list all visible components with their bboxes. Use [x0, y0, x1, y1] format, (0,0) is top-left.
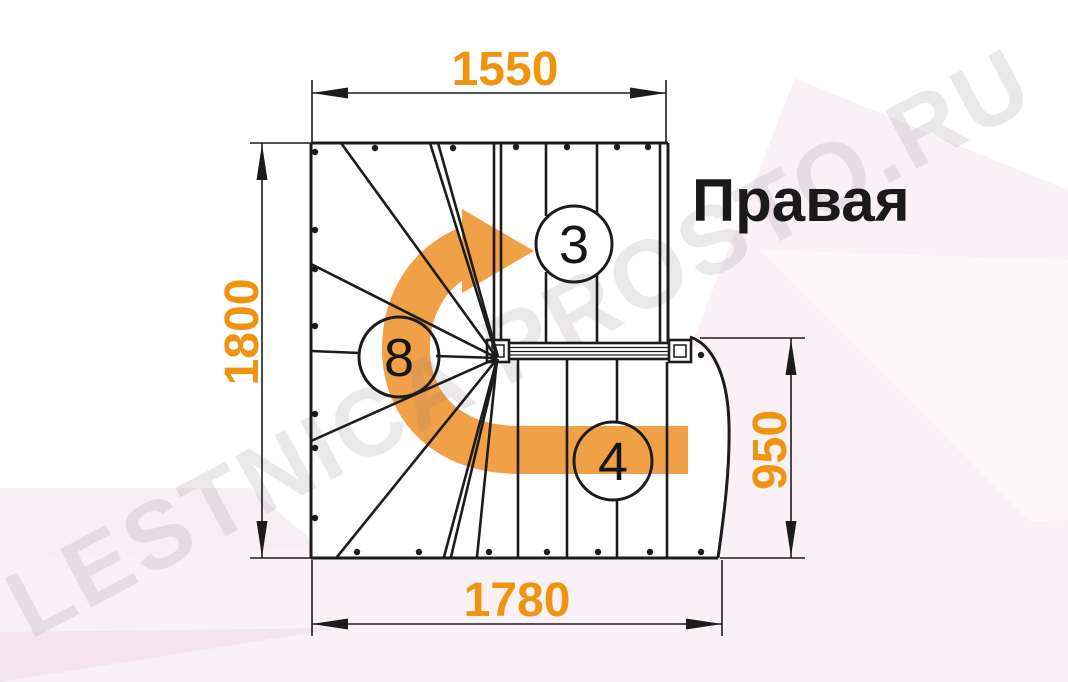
badge-label-winder: 8: [384, 328, 414, 388]
screw-dot: [450, 145, 456, 151]
stair-plan-page: LESTNICA PROSTO.RU: [0, 0, 1068, 682]
screw-dot: [312, 515, 318, 521]
stair-plan-diagram: LESTNICA PROSTO.RU: [0, 0, 1068, 682]
screw-dot: [312, 266, 318, 272]
screw-dot: [486, 549, 492, 555]
screw-dot: [645, 144, 651, 150]
handedness-title: Правая: [692, 167, 910, 234]
screw-dot: [614, 144, 620, 150]
screw-dot: [312, 411, 318, 417]
screw-dot: [698, 352, 704, 358]
dimension-label-right: 950: [744, 410, 797, 490]
screw-dot: [698, 549, 704, 555]
badge-label-lower-flight: 4: [598, 432, 628, 492]
dimension-label-top: 1550: [452, 43, 559, 96]
screw-dot: [595, 549, 601, 555]
beam-post-right: [669, 340, 691, 362]
badge-label-upper-flight: 3: [559, 215, 589, 275]
screw-dot: [544, 549, 550, 555]
screw-dot: [372, 145, 378, 151]
screw-dot: [312, 149, 318, 155]
dimension-label-bottom: 1780: [464, 574, 571, 627]
landing-beam: [487, 340, 691, 362]
screw-dot: [564, 144, 570, 150]
screw-dot: [354, 549, 360, 555]
dimension-label-left: 1800: [216, 279, 269, 386]
screw-dot: [416, 549, 422, 555]
screw-dot: [647, 549, 653, 555]
screw-dot: [513, 144, 519, 150]
screw-dot: [312, 445, 318, 451]
screw-dot: [312, 323, 318, 329]
screw-dot: [312, 227, 318, 233]
